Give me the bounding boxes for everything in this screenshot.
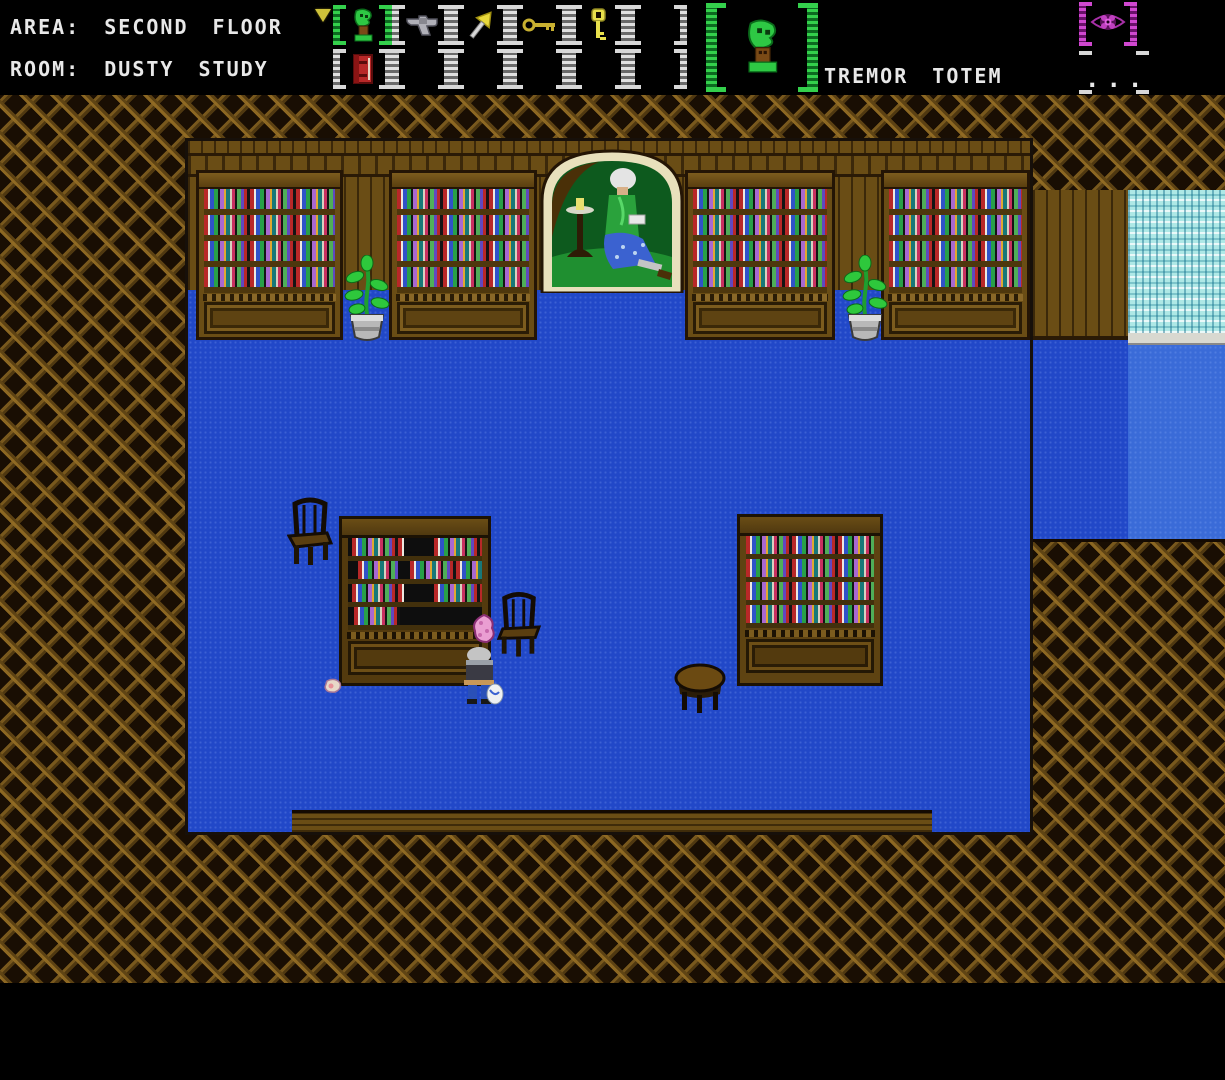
book-row (348, 584, 482, 607)
bookcase-top (688, 173, 832, 189)
bookcase-trim (692, 294, 828, 301)
hallway-floor[interactable] (1128, 345, 1225, 542)
window-curtain[interactable] (1128, 190, 1225, 333)
bookcase-trim (396, 294, 530, 301)
bookcase-top (342, 519, 488, 538)
bookcase-top (199, 173, 340, 189)
potted-plant-right[interactable] (842, 255, 888, 347)
bookcase-cabinet[interactable] (204, 302, 335, 334)
book-row (204, 241, 335, 267)
red-book-icon (344, 50, 382, 88)
empty-slot (580, 50, 618, 88)
hud-bar: AREA: SECOND FLOOR ROOM: DUSTY STUDY (0, 0, 1225, 95)
bracket-left (392, 49, 399, 89)
game-screen: AREA: SECOND FLOOR ROOM: DUSTY STUDY (0, 0, 1225, 1080)
wall-bookcase-1[interactable] (196, 170, 343, 340)
bracket-left (392, 5, 399, 45)
bracket-left (333, 5, 340, 45)
study-room (185, 138, 1033, 835)
inventory-slot-4-gold-key[interactable] (510, 5, 569, 45)
area-line: AREA: SECOND FLOOR (10, 15, 283, 39)
book-row (889, 215, 1022, 241)
tremor-totem-icon (344, 6, 382, 44)
bracket-right (680, 5, 687, 45)
bookcase-trim (888, 294, 1023, 301)
book-row (693, 267, 827, 293)
bracket-right (444, 49, 451, 89)
empty-slot (639, 6, 677, 44)
empty-slot (462, 50, 500, 88)
potted-plant-left[interactable] (344, 255, 390, 347)
book-row (889, 267, 1022, 293)
wall-bookcase-4[interactable] (881, 170, 1030, 340)
inventory-slot-1-tremor-totem[interactable] (333, 5, 392, 45)
empty-slot (639, 50, 677, 88)
bracket-right (385, 5, 392, 45)
empty-slot (521, 50, 559, 88)
inventory-slot-8-empty[interactable] (392, 49, 451, 89)
ellipsis-indicator[interactable]: ... (1079, 51, 1135, 94)
bracket-right (503, 5, 510, 45)
bracket-left (628, 49, 635, 89)
bracket-right (680, 49, 687, 89)
inventory-slot-10-empty[interactable] (510, 49, 569, 89)
wall-bookcase-2[interactable] (389, 170, 537, 340)
study-bottom-wall (292, 810, 932, 832)
book-row (693, 189, 827, 215)
inventory-slot-7-red-book[interactable] (333, 49, 392, 89)
bracket-right (807, 3, 818, 92)
bracket-left (1079, 2, 1086, 46)
book-row (889, 241, 1022, 267)
book-row (746, 559, 874, 582)
key-horizontal-icon (521, 6, 559, 44)
bracket-left (628, 5, 635, 45)
empty-slot (403, 50, 441, 88)
inventory-slot-9-empty[interactable] (451, 49, 510, 89)
book-row (397, 267, 529, 293)
inventory-slot-12-empty[interactable] (628, 49, 687, 89)
book-row (397, 215, 529, 241)
inventory-slot-11-empty[interactable] (569, 49, 628, 89)
bracket-left (510, 49, 517, 89)
freestanding-bookcase-right[interactable] (737, 514, 883, 686)
key-vertical-icon (580, 6, 618, 44)
bracket-right (562, 5, 569, 45)
annex-floor[interactable] (1033, 340, 1128, 542)
bookcase-top (392, 173, 534, 189)
selected-item-slot[interactable] (706, 3, 818, 92)
bookcase-trim (347, 632, 483, 639)
book-row (693, 241, 827, 267)
book-row (746, 605, 874, 628)
bookcase-cabinet[interactable] (397, 302, 529, 334)
bracket-left (706, 3, 717, 92)
inventory-row-2 (333, 49, 687, 89)
bookcase-trim (745, 630, 875, 637)
dropped-item[interactable] (323, 677, 343, 699)
bracket-left (569, 5, 576, 45)
selected-item-label: TREMOR TOTEM (824, 64, 1003, 88)
bracket-left (333, 49, 340, 89)
bracket-right (503, 49, 510, 89)
bottom-letterbox (0, 983, 1225, 1080)
round-table[interactable] (674, 662, 726, 718)
book-row (204, 267, 335, 293)
bookcase-cabinet[interactable] (889, 302, 1022, 334)
bracket-right (621, 5, 628, 45)
book-row (348, 561, 482, 584)
inventory-slot-5-skeleton-key[interactable] (569, 5, 628, 45)
book-row (746, 536, 874, 559)
down-triangle-cursor-icon[interactable] (315, 9, 331, 22)
bookcase-top (740, 517, 880, 536)
book-row (397, 241, 529, 267)
portrait-painting[interactable] (539, 145, 685, 297)
inventory-slot-6-empty[interactable] (628, 5, 687, 45)
bookcase-top (884, 173, 1027, 189)
book-row (693, 215, 827, 241)
bracket-left (451, 5, 458, 45)
book-row (746, 582, 874, 605)
eye-indicator-icon (1089, 6, 1127, 42)
chair-left[interactable] (287, 496, 333, 572)
bracket-left (510, 5, 517, 45)
bracket-left (451, 49, 458, 89)
bracket-right (1130, 2, 1137, 46)
bookcase-trim (203, 294, 336, 301)
inventory-row-1 (333, 5, 687, 45)
book-row (397, 189, 529, 215)
inventory-slot-2-revolver[interactable] (392, 5, 451, 45)
bookcase-cabinet[interactable] (693, 302, 827, 334)
bookcase-cabinet[interactable] (746, 639, 874, 673)
bracket-right (621, 49, 628, 89)
revolver-icon (403, 6, 441, 44)
wall-bookcase-3[interactable] (685, 170, 835, 340)
bracket-right (562, 49, 569, 89)
window-sill (1128, 333, 1225, 345)
book-row (348, 538, 482, 561)
bracket-left (569, 49, 576, 89)
duster-icon (462, 6, 500, 44)
book-row (889, 189, 1022, 215)
player-character[interactable] (458, 647, 504, 713)
room-line: ROOM: DUSTY STUDY (10, 57, 269, 81)
inventory-slot-3-duster[interactable] (451, 5, 510, 45)
book-row (204, 189, 335, 215)
pink-item[interactable] (471, 613, 497, 649)
tremor-totem-icon (741, 10, 783, 86)
eye-indicator[interactable] (1079, 2, 1137, 46)
book-row (204, 215, 335, 241)
bracket-right (444, 5, 451, 45)
game-area (0, 95, 1225, 983)
book-row (348, 607, 482, 630)
annex-wall (1033, 190, 1128, 340)
bracket-right (385, 49, 392, 89)
